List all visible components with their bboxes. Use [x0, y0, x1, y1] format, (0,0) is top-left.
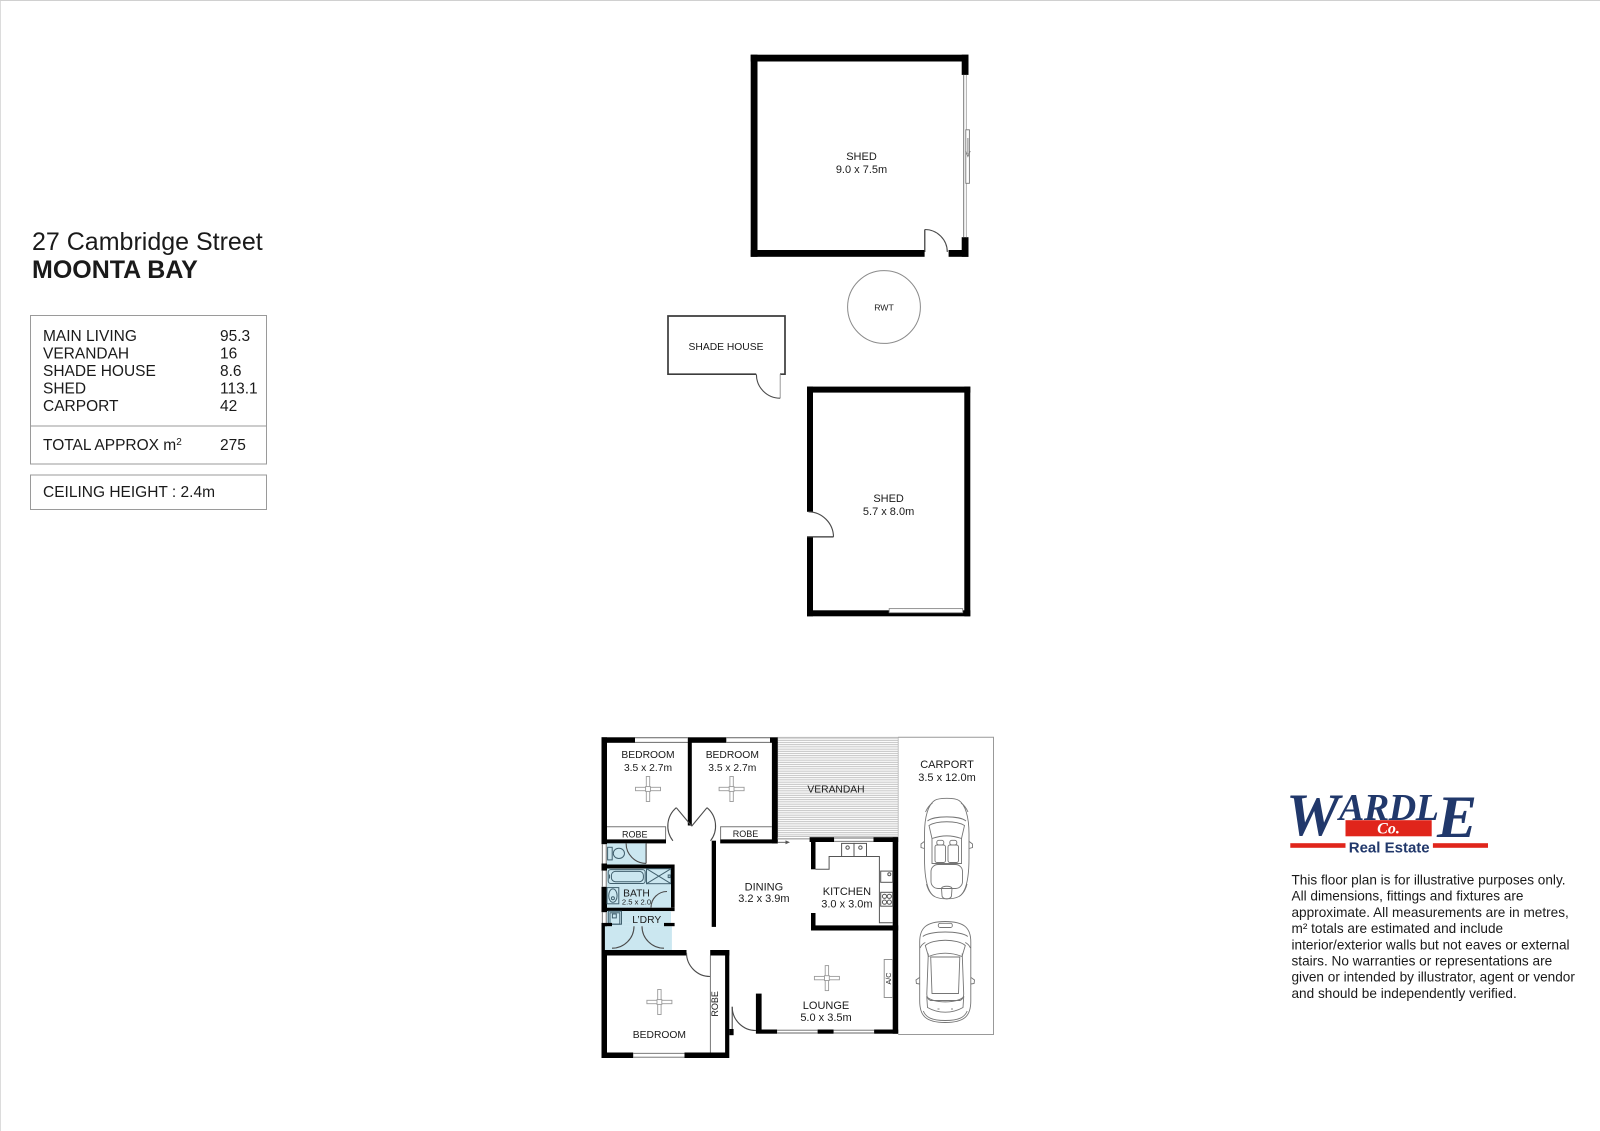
svg-text:Real Estate: Real Estate: [1349, 840, 1430, 857]
svg-text:CEILING HEIGHT : 2.4m: CEILING HEIGHT : 2.4m: [43, 484, 215, 501]
svg-text:CARPORT: CARPORT: [43, 398, 119, 415]
svg-text:42: 42: [220, 398, 237, 415]
svg-text:275: 275: [220, 437, 246, 454]
svg-text:2.5 x 2.0: 2.5 x 2.0: [622, 898, 651, 907]
svg-text:W: W: [1286, 782, 1343, 848]
svg-text:CARPORT: CARPORT: [920, 759, 974, 771]
svg-text:9.0 x 7.5m: 9.0 x 7.5m: [836, 164, 887, 176]
svg-text:5.0 x 3.5m: 5.0 x 3.5m: [800, 1012, 851, 1024]
svg-text:SHADE HOUSE: SHADE HOUSE: [689, 342, 764, 353]
svg-text:given or intended by illustrat: given or intended by illustrator, agent …: [1292, 970, 1576, 985]
svg-text:TOTAL APPROX m2: TOTAL APPROX m2: [43, 437, 182, 454]
svg-text:VERANDAH: VERANDAH: [807, 785, 864, 796]
svg-text:KITCHEN: KITCHEN: [823, 886, 871, 898]
svg-text:Co.: Co.: [1377, 821, 1400, 838]
svg-text:BEDROOM: BEDROOM: [621, 750, 674, 761]
svg-text:RWT: RWT: [874, 303, 894, 313]
svg-text:stairs. No warranties or repre: stairs. No warranties or representations…: [1292, 954, 1553, 969]
svg-text:ROBE: ROBE: [733, 829, 759, 839]
svg-text:DINING: DINING: [745, 881, 784, 893]
svg-text:3.0 x 3.0m: 3.0 x 3.0m: [821, 899, 872, 911]
svg-text:8.6: 8.6: [220, 363, 242, 380]
svg-text:ROBE: ROBE: [710, 991, 720, 1017]
svg-text:VERANDAH: VERANDAH: [43, 346, 129, 363]
svg-text:BEDROOM: BEDROOM: [706, 750, 759, 761]
svg-text:LOUNGE: LOUNGE: [803, 1000, 849, 1012]
svg-text:interior/exterior walls but no: interior/exterior walls but not eaves or…: [1292, 937, 1570, 952]
svg-text:E: E: [1436, 784, 1477, 850]
svg-text:m² totals are estimated and in: m² totals are estimated and include: [1292, 921, 1504, 936]
svg-text:All dimensions, fittings and f: All dimensions, fittings and fixtures ar…: [1292, 889, 1524, 904]
svg-text:5.7 x 8.0m: 5.7 x 8.0m: [863, 506, 914, 518]
svg-text:SHED: SHED: [873, 493, 904, 505]
svg-text:3.5 x 2.7m: 3.5 x 2.7m: [624, 763, 672, 774]
svg-text:16: 16: [220, 346, 237, 363]
svg-text:3.5 x 12.0m: 3.5 x 12.0m: [918, 772, 975, 784]
svg-text:This floor plan is for illustr: This floor plan is for illustrative purp…: [1292, 873, 1566, 888]
svg-text:BEDROOM: BEDROOM: [633, 1030, 686, 1041]
svg-text:A/C: A/C: [884, 973, 893, 985]
svg-text:SHED: SHED: [846, 151, 877, 163]
svg-text:3.5 x 2.7m: 3.5 x 2.7m: [708, 763, 756, 774]
svg-text:113.1: 113.1: [220, 381, 258, 398]
svg-text:MAIN LIVING: MAIN LIVING: [43, 328, 137, 345]
svg-text:SHED: SHED: [43, 381, 86, 398]
svg-text:and should be independently ve: and should be independently verified.: [1292, 986, 1517, 1001]
svg-text:95.3: 95.3: [220, 328, 250, 345]
svg-text:L’DRY: L’DRY: [632, 915, 661, 926]
svg-text:ROBE: ROBE: [622, 829, 648, 839]
svg-text:3.2 x 3.9m: 3.2 x 3.9m: [738, 893, 789, 905]
svg-text:SHADE HOUSE: SHADE HOUSE: [43, 363, 156, 380]
svg-text:MOONTA BAY: MOONTA BAY: [32, 256, 198, 284]
svg-text:27 Cambridge Street: 27 Cambridge Street: [32, 228, 263, 256]
svg-text:approximate. All measurements: approximate. All measurements are in met…: [1292, 905, 1569, 920]
